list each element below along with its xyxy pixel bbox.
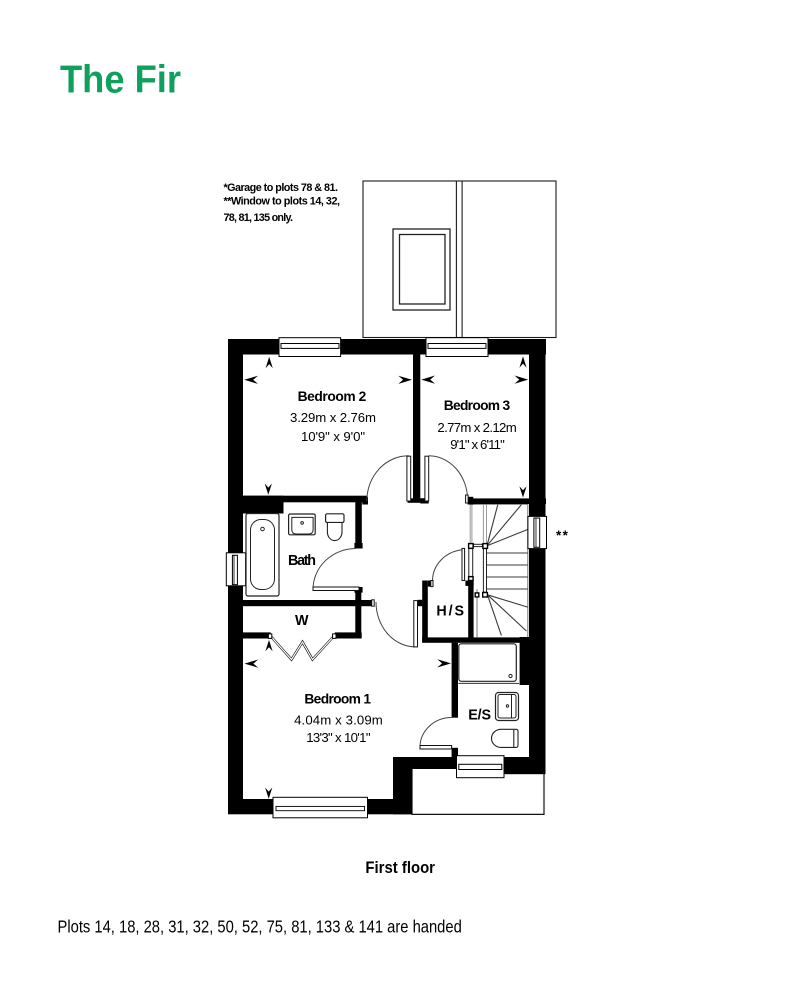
svg-text:The Fir: The Fir bbox=[60, 59, 181, 102]
svg-text:H/S: H/S bbox=[436, 604, 464, 620]
svg-text:First floor: First floor bbox=[365, 858, 435, 877]
svg-text:*Garage to plots 78 & 81.: *Garage to plots 78 & 81. bbox=[224, 182, 339, 194]
svg-text:Bedroom 1: Bedroom 1 bbox=[304, 691, 371, 706]
svg-text:Plots 14, 18, 28, 31, 32, 50,: Plots 14, 18, 28, 31, 32, 50, 52, 75, 81… bbox=[58, 916, 462, 936]
svg-text:3.29m x 2.76m: 3.29m x 2.76m bbox=[290, 410, 376, 425]
svg-text:W: W bbox=[295, 613, 309, 629]
svg-text:Bath: Bath bbox=[288, 553, 316, 569]
svg-text:9'1" x 6'11": 9'1" x 6'11" bbox=[450, 437, 505, 452]
svg-text:Bedroom 2: Bedroom 2 bbox=[298, 389, 367, 404]
svg-text:**: ** bbox=[556, 528, 569, 543]
svg-text:**Window to plots 14, 32,: **Window to plots 14, 32, bbox=[224, 196, 341, 208]
svg-text:2.77m x 2.12m: 2.77m x 2.12m bbox=[437, 420, 516, 435]
svg-text:Bedroom 3: Bedroom 3 bbox=[444, 398, 511, 413]
svg-text:E/S: E/S bbox=[468, 707, 491, 723]
svg-text:13'3" x 10'1": 13'3" x 10'1" bbox=[306, 730, 371, 745]
svg-text:78, 81, 135 only.: 78, 81, 135 only. bbox=[224, 212, 294, 224]
svg-text:10'9" x 9'0": 10'9" x 9'0" bbox=[301, 429, 365, 444]
svg-text:4.04m x 3.09m: 4.04m x 3.09m bbox=[294, 713, 383, 728]
